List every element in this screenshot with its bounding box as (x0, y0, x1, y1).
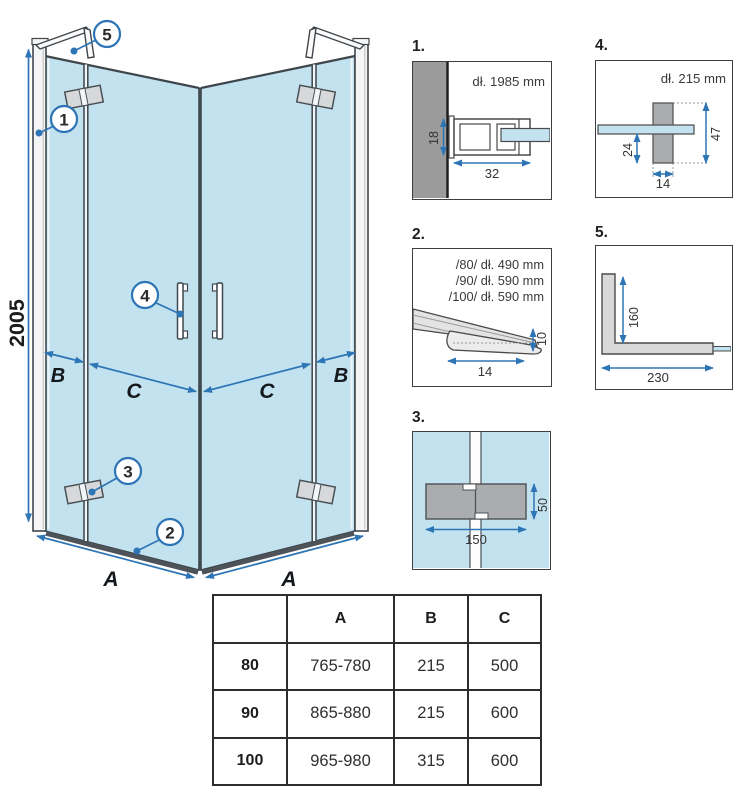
detail-3-number: 3. (412, 409, 425, 427)
shower-enclosure-dimension-diagram: 2005 B C C B A A (0, 0, 751, 800)
seal-strip-drawing (413, 309, 541, 354)
svg-text:A: A (280, 568, 296, 591)
c-cell: 600 (468, 690, 541, 738)
svg-text:3: 3 (123, 463, 132, 482)
svg-text:C: C (126, 380, 142, 403)
svg-text:230: 230 (647, 370, 669, 385)
c-cell: 500 (468, 643, 541, 691)
size-table: A B C 80 765-780 215 500 90 865-880 215 … (212, 594, 542, 786)
svg-text:50: 50 (536, 498, 549, 512)
detail-3-box: 150 50 (412, 431, 551, 570)
table-header-c: C (468, 595, 541, 643)
svg-text:C: C (259, 380, 275, 403)
svg-text:14: 14 (656, 176, 670, 191)
table-header-b: B (394, 595, 468, 643)
table-header-a: A (287, 595, 394, 643)
dimension-160: 160 (623, 277, 641, 343)
table-row: 100 965-980 315 600 (213, 738, 541, 786)
l-profile-section (602, 274, 713, 354)
detail-4-title: dł. 215 mm (661, 71, 726, 86)
size-cell: 100 (213, 738, 287, 786)
detail-1-number: 1. (412, 38, 425, 56)
svg-text:160: 160 (627, 307, 641, 328)
callout-5: 5 (71, 21, 121, 55)
dimension-32: 32 (454, 163, 530, 181)
wall-profile-cross-section (449, 116, 550, 158)
glass-section (598, 125, 694, 134)
main-isometric-drawing: 2005 B C C B A A (0, 0, 405, 620)
dimension-height-2005: 2005 (5, 50, 29, 522)
svg-text:B: B (51, 365, 65, 387)
svg-text:2005: 2005 (5, 299, 29, 347)
dimension-14: 14 (653, 174, 673, 191)
size-cell: 90 (213, 690, 287, 738)
svg-text:18: 18 (427, 131, 441, 145)
svg-text:150: 150 (465, 532, 487, 547)
c-cell: 600 (468, 738, 541, 786)
svg-text:14: 14 (478, 364, 492, 379)
glass-edge-stub (713, 347, 731, 352)
dimension-47: 47 (706, 103, 723, 163)
svg-text:A: A (102, 568, 118, 591)
dimension-24: 24 (621, 134, 637, 163)
detail-2-size-90: /90/ dł. 590 mm (456, 273, 544, 288)
support-bar-right-bracket (306, 28, 316, 58)
svg-text:4: 4 (140, 287, 150, 306)
b-cell: 215 (394, 643, 468, 691)
detail-2-number: 2. (412, 226, 425, 244)
glass-cross-section (501, 129, 550, 142)
detail-4-box: dł. 215 mm 47 24 14 (595, 60, 733, 198)
svg-text:B: B (334, 365, 348, 387)
svg-text:10: 10 (535, 332, 549, 346)
table-row: 90 865-880 215 600 (213, 690, 541, 738)
a-cell: 765-780 (287, 643, 394, 691)
svg-text:32: 32 (485, 166, 499, 181)
wall-profile-left (33, 44, 46, 531)
hinge-plate (426, 484, 526, 519)
size-cell: 80 (213, 643, 287, 691)
detail-2-size-100: /100/ dł. 590 mm (449, 289, 544, 304)
b-cell: 215 (394, 690, 468, 738)
svg-text:1: 1 (59, 111, 68, 130)
table-row: 80 765-780 215 500 (213, 643, 541, 691)
detail-1-box: dł. 1985 mm 18 32 (412, 61, 552, 200)
wall-section (413, 62, 447, 198)
detail-5-number: 5. (595, 224, 608, 242)
svg-text:47: 47 (709, 127, 723, 141)
a-cell: 865-880 (287, 690, 394, 738)
dimension-230: 230 (602, 368, 713, 385)
detail-2-size-80: /80/ dł. 490 mm (456, 257, 544, 272)
detail-1-title: dł. 1985 mm (472, 74, 545, 89)
table-header-empty (213, 595, 287, 643)
svg-text:24: 24 (621, 143, 635, 157)
wall-profile-right (355, 44, 368, 531)
svg-text:2: 2 (165, 524, 174, 543)
detail-5-box: 160 230 (595, 245, 733, 390)
dimension-14: 14 (448, 361, 524, 379)
detail-4-number: 4. (595, 37, 608, 55)
detail-2-box: /80/ dł. 490 mm /90/ dł. 590 mm /100/ dł… (412, 248, 552, 387)
table-header-row: A B C (213, 595, 541, 643)
b-cell: 315 (394, 738, 468, 786)
svg-text:5: 5 (102, 26, 111, 45)
a-cell: 965-980 (287, 738, 394, 786)
